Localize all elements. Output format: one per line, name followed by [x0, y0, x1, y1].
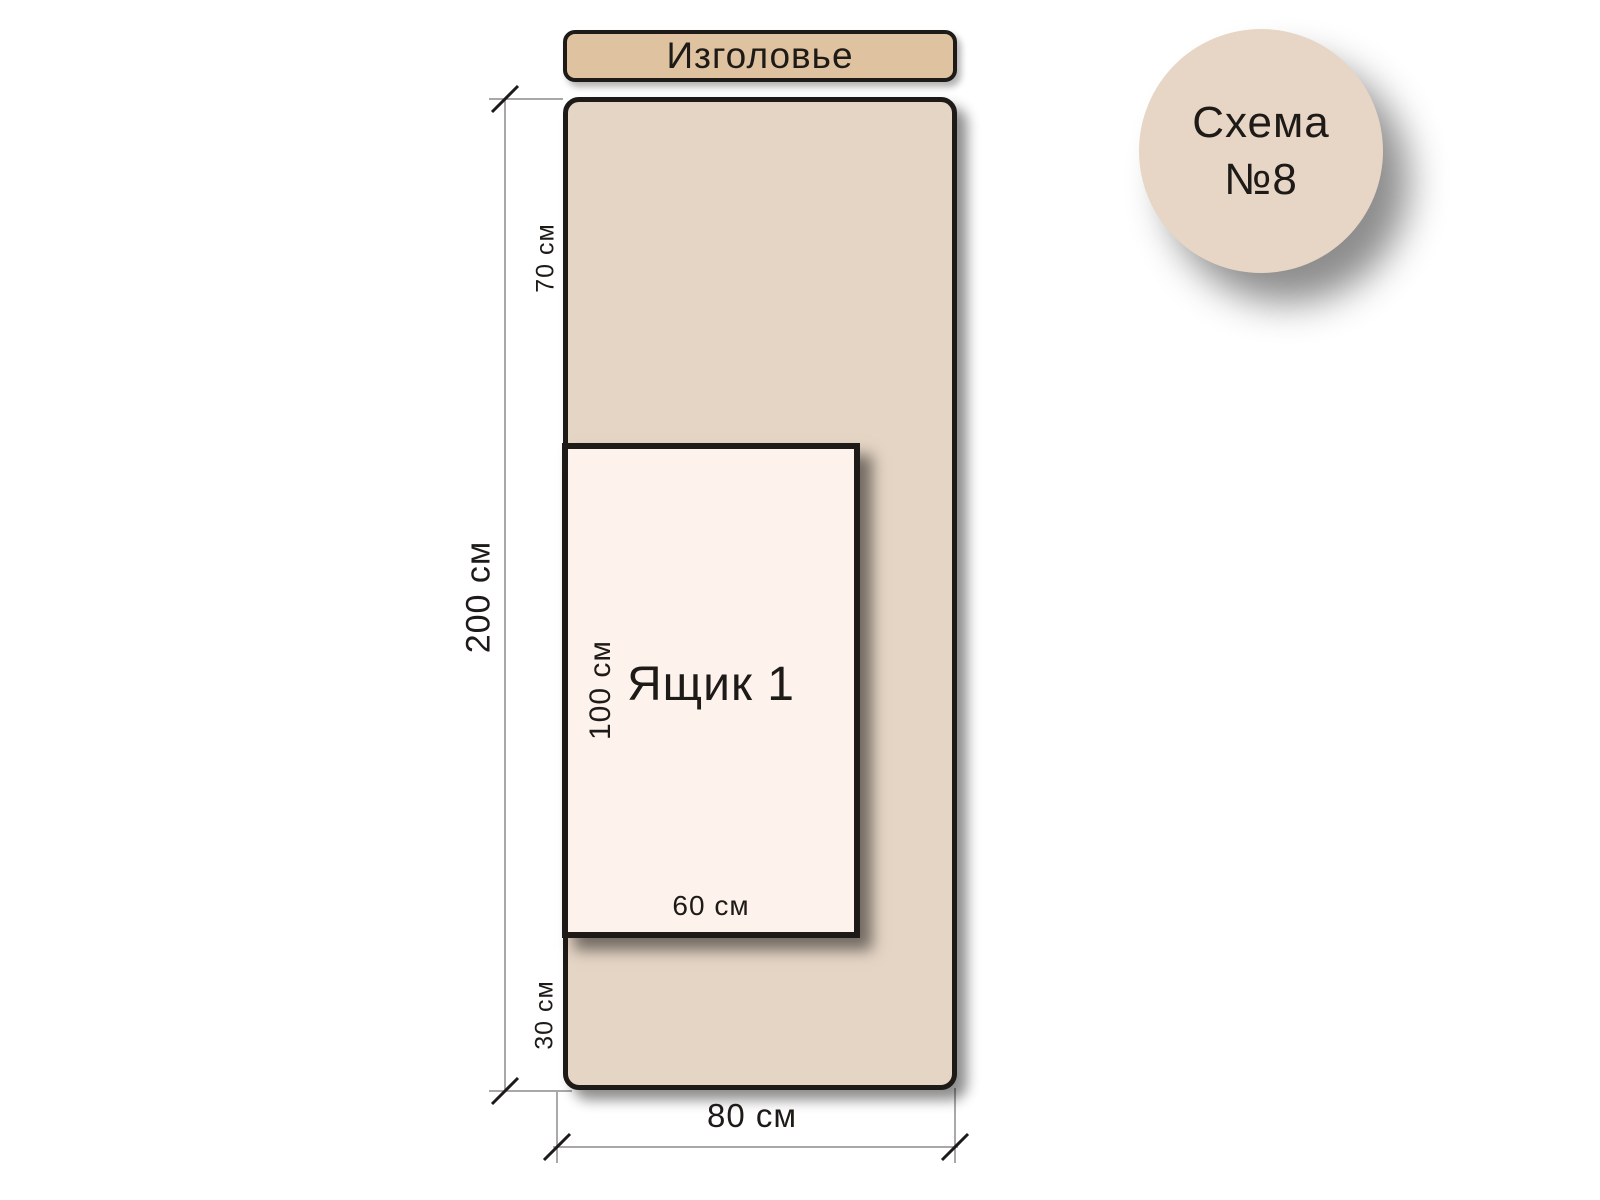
bed-width-dimension: 80 см — [707, 1097, 797, 1135]
headboard-label-text: Изголовье — [666, 35, 853, 77]
tick-top — [492, 86, 518, 112]
scheme-badge-line2: №8 — [1224, 151, 1298, 208]
tick-width-right — [942, 1134, 968, 1160]
drawer-1-outline: Ящик 1 100 см 60 см — [562, 443, 860, 938]
drawer-width-dimension: 60 см — [568, 890, 854, 922]
tick-width-left — [544, 1134, 570, 1160]
scheme-diagram: Изголовье Ящик 1 100 см 60 см 70 см 200 … — [0, 0, 1600, 1200]
scheme-number-badge: Схема №8 — [1139, 29, 1383, 273]
foot-offset-dimension: 30 см — [531, 980, 560, 1049]
headboard-label: Изголовье — [563, 30, 957, 82]
bed-length-dimension: 200 см — [460, 541, 499, 654]
scheme-badge-line1: Схема — [1192, 94, 1329, 151]
head-offset-dimension: 70 см — [532, 223, 561, 292]
tick-bottom — [492, 1078, 518, 1104]
drawer-length-dimension: 100 см — [584, 640, 618, 740]
